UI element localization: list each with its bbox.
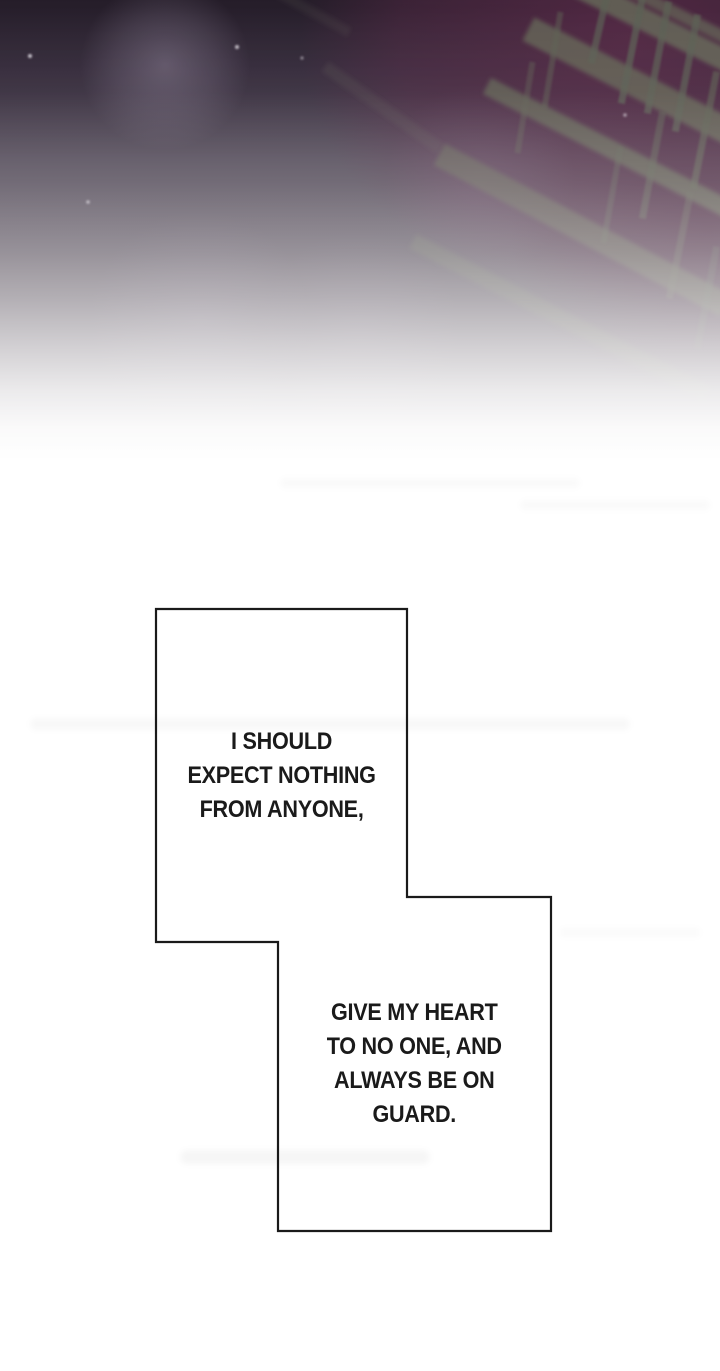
speech-panels-layer xyxy=(0,0,720,1371)
comic-page: I SHOULD EXPECT NOTHING FROM ANYONE, GIV… xyxy=(0,0,720,1371)
panels-union-border xyxy=(156,609,551,1231)
